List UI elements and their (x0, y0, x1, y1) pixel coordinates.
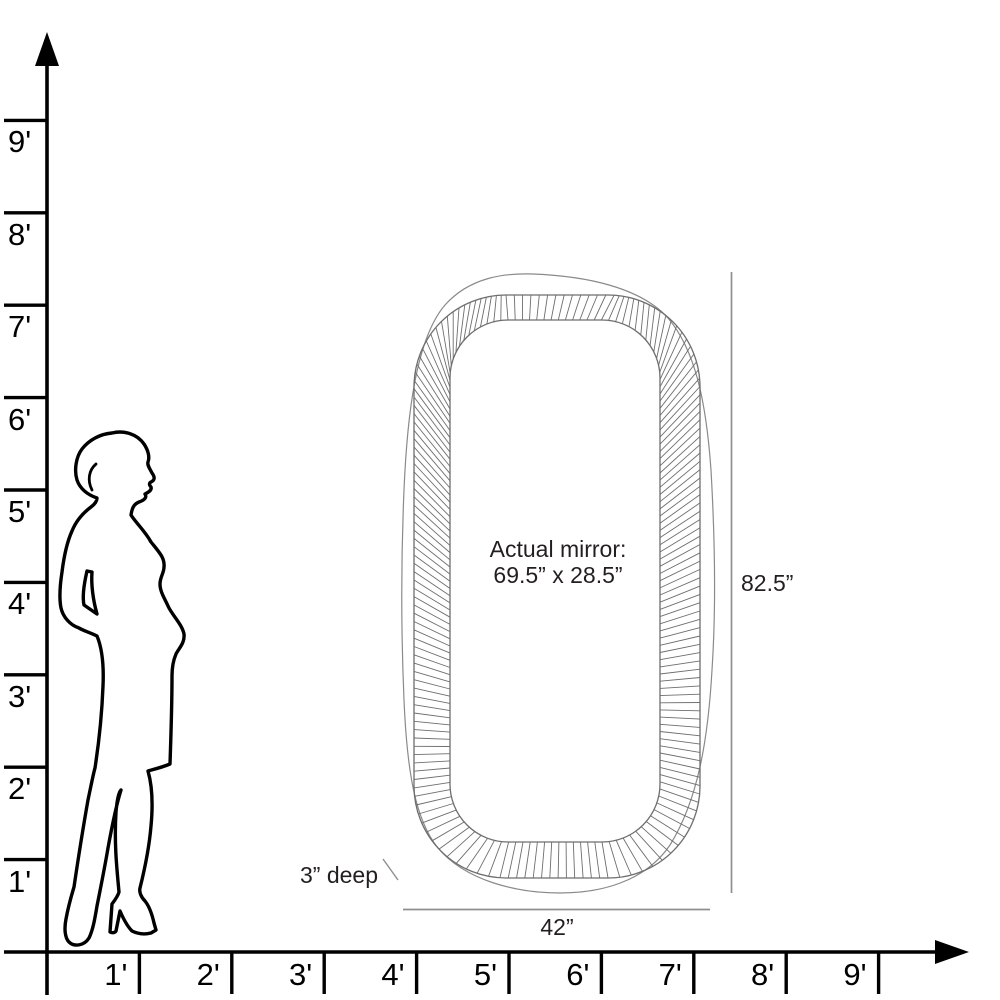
vertical-axis-label: 3' (8, 681, 31, 712)
horizontal-axis-label: 4' (355, 959, 405, 990)
horizontal-axis-label: 2' (170, 959, 220, 990)
vertical-axis-label: 7' (8, 311, 31, 342)
woman-silhouette (60, 432, 184, 945)
horizontal-axis-label: 9' (817, 959, 867, 990)
horizontal-axis-label: 7' (632, 959, 682, 990)
horizontal-axis-label: 5' (447, 959, 497, 990)
vertical-axis-label: 5' (8, 496, 31, 527)
depth-dimension-label: 3” deep (296, 863, 378, 888)
horizontal-axis-label: 1' (77, 959, 127, 990)
width-dimension-label: 42” (507, 915, 607, 940)
vertical-axis-arrow-icon (35, 32, 59, 66)
horizontal-axis-label: 3' (262, 959, 312, 990)
vertical-axis-label: 4' (8, 588, 31, 619)
horizontal-axis-label: 6' (539, 959, 589, 990)
diagram-canvas (0, 0, 1000, 1000)
mirror-size-caption: Actual mirror: 69.5” x 28.5” (438, 536, 678, 588)
depth-leader-line (383, 859, 398, 880)
vertical-axis-label: 2' (8, 773, 31, 804)
vertical-axis-label: 8' (8, 219, 31, 250)
dimension-lines (383, 272, 732, 910)
horizontal-axis-label: 8' (724, 959, 774, 990)
mirror-size-caption-line1: Actual mirror: (438, 536, 678, 562)
woman-outline (60, 432, 184, 945)
horizontal-axis-arrow-icon (935, 940, 969, 964)
size-comparison-diagram: 1'2'3'4'5'6'7'8'9' 1'2'3'4'5'6'7'8'9' Ac… (0, 0, 1000, 1000)
vertical-axis-label: 1' (8, 866, 31, 897)
vertical-axis-label: 6' (8, 404, 31, 435)
vertical-axis-label: 9' (8, 126, 31, 157)
mirror-size-caption-line2: 69.5” x 28.5” (438, 562, 678, 588)
height-dimension-label: 82.5” (741, 571, 793, 596)
